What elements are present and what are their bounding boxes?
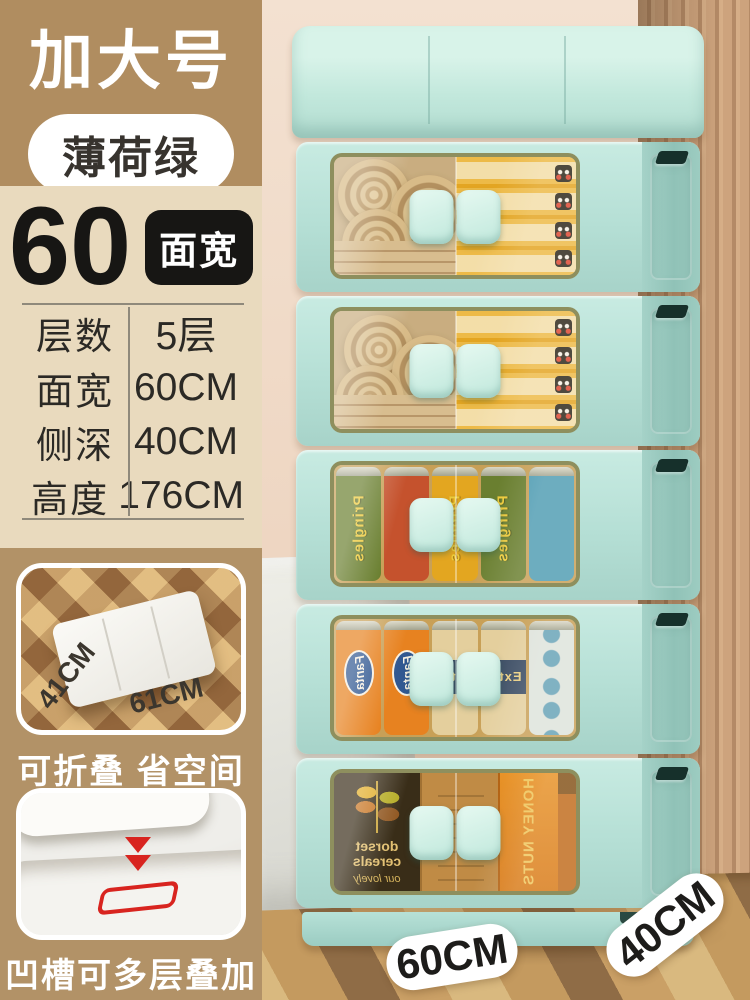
spec-row: 面宽 60CM	[22, 361, 244, 415]
spec-block: 60 面宽 层数 5层 面宽 60CM 侧深 40CM 高度	[0, 186, 262, 548]
cabinet-tier-3: Pringles Pringles Pringles	[296, 450, 700, 600]
product-promo-image: Pringles Pringles Pringles Fanta Fanta E…	[0, 0, 750, 1000]
cereal-plant-illustration	[352, 781, 404, 833]
spec-row: 高度 176CM	[22, 469, 244, 523]
kumamon-bear-icon	[555, 193, 572, 210]
fold-slot	[655, 613, 689, 626]
width-unit-badge: 面宽	[145, 210, 253, 285]
color-badge: 薄荷绿	[28, 114, 234, 194]
feature-caption-foldable: 可折叠 省空间	[0, 744, 262, 793]
info-column: 加大号 薄荷绿 60 面宽 层数 5层 面宽 60CM 侧深 40C	[0, 0, 262, 1000]
door-handle	[410, 344, 501, 398]
feature-photo-groove	[16, 788, 246, 940]
down-arrow-icon	[125, 855, 151, 871]
cabinet-tier-5: dorset cereals our lovely HONEY NUTS	[296, 758, 700, 908]
width-number: 60	[9, 192, 131, 302]
cereal-box-black: dorset cereals our lovely	[334, 773, 420, 891]
door-handle	[410, 498, 501, 552]
kumamon-bear-icon	[555, 404, 572, 421]
pringles-can-label: Pringles	[350, 495, 367, 562]
fold-slot	[655, 305, 689, 318]
fold-slot	[655, 151, 689, 164]
table-divider	[128, 307, 130, 516]
cabinet-tier-4: Fanta Fanta Extra Extra	[296, 604, 700, 754]
cabinet-tier-2	[296, 296, 700, 446]
fold-slot	[655, 459, 689, 472]
honey-nuts-bag: HONEY NUTS	[498, 773, 558, 891]
fanta-logo: Fanta	[344, 650, 374, 696]
kumamon-bear-icon	[555, 376, 572, 393]
down-arrow-icon	[125, 837, 151, 853]
kumamon-bear-icon	[555, 250, 572, 267]
cabinet-tier-1	[296, 142, 700, 292]
feature-caption-stackable: 凹槽可多层叠加	[0, 948, 262, 997]
kumamon-bear-icon	[555, 222, 572, 239]
kumamon-bear-icon	[555, 319, 572, 336]
spec-table: 层数 5层 面宽 60CM 侧深 40CM 高度 176CM	[22, 305, 244, 518]
features-block: 41CM 61CM 可折叠 省空间 凹槽可多层叠加	[0, 548, 262, 1000]
door-handle	[410, 652, 501, 706]
size-badge: 加大号	[0, 10, 262, 102]
feature-photo-folded: 41CM 61CM	[16, 563, 246, 735]
folded-towels	[334, 395, 456, 429]
kumamon-bear-icon	[555, 347, 572, 364]
stacking-lid	[16, 788, 211, 838]
kumamon-bear-icon	[555, 165, 572, 182]
storage-cabinet: Pringles Pringles Pringles Fanta Fanta E…	[296, 26, 700, 946]
honey-jar	[558, 773, 576, 891]
fold-slot	[655, 767, 689, 780]
spec-row: 层数 5层	[22, 305, 244, 361]
spec-row: 侧深 40CM	[22, 415, 244, 469]
cabinet-lid	[292, 26, 704, 138]
folded-towels	[334, 241, 456, 275]
door-handle	[410, 190, 501, 244]
door-handle	[410, 806, 501, 860]
header-block: 加大号 薄荷绿	[0, 0, 262, 186]
divider	[22, 518, 244, 520]
